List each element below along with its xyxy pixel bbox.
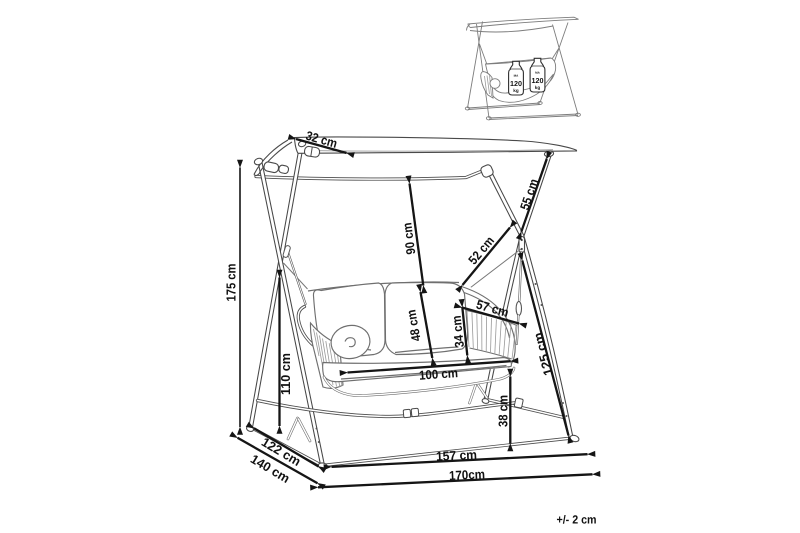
svg-text:kg: kg [535, 85, 541, 90]
svg-text:175 cm: 175 cm [224, 264, 239, 302]
svg-text:100 cm: 100 cm [418, 365, 458, 383]
svg-text:38 cm: 38 cm [495, 395, 510, 427]
svg-text:157 cm: 157 cm [436, 447, 478, 464]
svg-text:170cm: 170cm [449, 466, 486, 483]
svg-text:110 cm: 110 cm [278, 353, 293, 395]
svg-text:120: 120 [531, 76, 543, 85]
svg-text:kg: kg [513, 88, 519, 93]
svg-text:120: 120 [510, 79, 522, 88]
svg-text:+/- 2 cm: +/- 2 cm [556, 512, 596, 526]
